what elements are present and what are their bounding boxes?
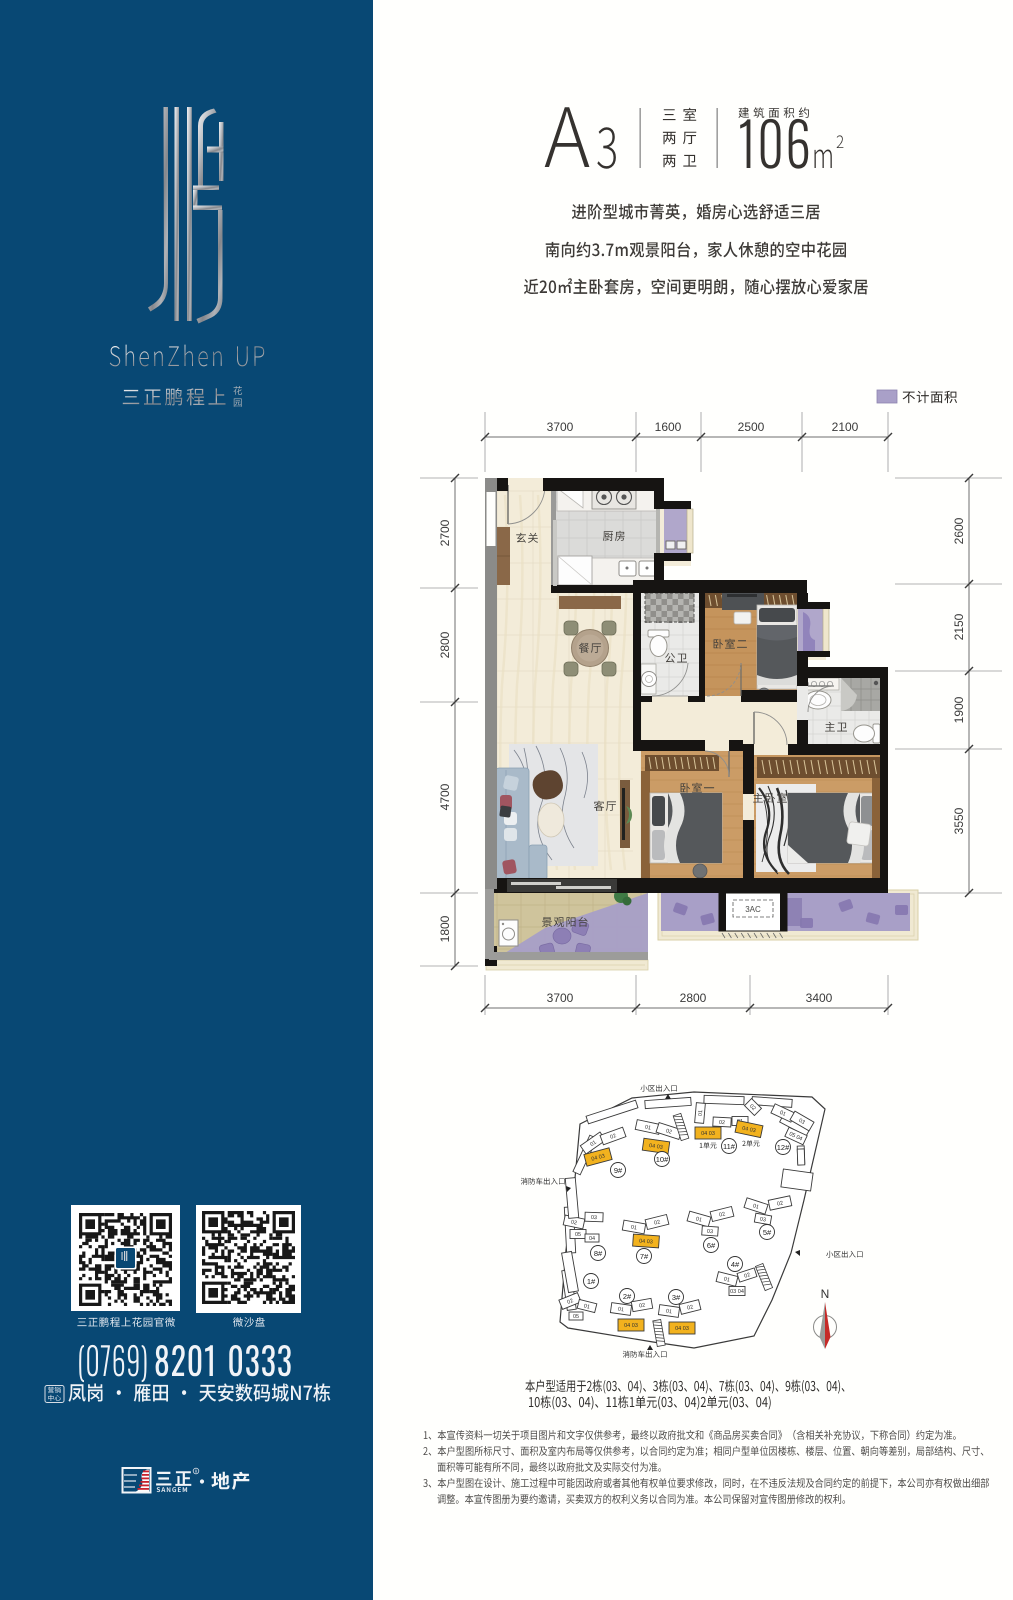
svg-text:7#: 7# xyxy=(640,1252,649,1261)
svg-text:01: 01 xyxy=(617,1307,624,1314)
svg-text:3400: 3400 xyxy=(806,991,833,1005)
svg-text:1600: 1600 xyxy=(655,420,682,434)
svg-text:6#: 6# xyxy=(707,1241,716,1250)
svg-text:10#: 10# xyxy=(656,1155,669,1164)
svg-text:12#: 12# xyxy=(777,1143,790,1152)
svg-text:02: 02 xyxy=(570,1219,577,1226)
svg-text:1#: 1# xyxy=(587,1277,596,1286)
svg-text:N: N xyxy=(821,1287,830,1301)
svg-text:2800: 2800 xyxy=(438,631,452,658)
svg-text:05: 05 xyxy=(573,1314,579,1320)
svg-text:5#: 5# xyxy=(763,1228,772,1237)
svg-text:2150: 2150 xyxy=(952,613,966,640)
svg-text:04 03: 04 03 xyxy=(701,1131,715,1137)
svg-text:2700: 2700 xyxy=(438,519,452,546)
svg-text:4700: 4700 xyxy=(438,783,452,810)
svg-text:2100: 2100 xyxy=(832,420,859,434)
svg-text:1800: 1800 xyxy=(438,915,452,942)
svg-text:01: 01 xyxy=(698,1110,705,1117)
svg-text:1900: 1900 xyxy=(952,696,966,723)
svg-text:3#: 3# xyxy=(672,1293,681,1302)
svg-text:02: 02 xyxy=(639,1302,646,1309)
svg-text:3700: 3700 xyxy=(547,991,574,1005)
svg-text:2600: 2600 xyxy=(952,517,966,544)
svg-text:01: 01 xyxy=(665,1309,672,1316)
svg-text:03 04: 03 04 xyxy=(730,1289,744,1295)
svg-text:04 03: 04 03 xyxy=(639,1239,653,1246)
svg-text:01: 01 xyxy=(630,1224,637,1231)
svg-text:8#: 8# xyxy=(594,1249,603,1258)
svg-text:03: 03 xyxy=(707,1229,714,1235)
svg-text:4#: 4# xyxy=(731,1260,740,1269)
svg-text:04 03: 04 03 xyxy=(675,1326,689,1332)
svg-text:3AC: 3AC xyxy=(745,905,761,914)
svg-text:03: 03 xyxy=(759,1216,766,1223)
svg-text:04: 04 xyxy=(589,1236,595,1242)
svg-text:2#: 2# xyxy=(623,1292,632,1301)
svg-text:01: 01 xyxy=(644,1124,651,1131)
svg-text:04 03: 04 03 xyxy=(624,1323,638,1329)
svg-text:05: 05 xyxy=(575,1232,581,1238)
svg-text:3700: 3700 xyxy=(547,420,574,434)
svg-text:2800: 2800 xyxy=(680,991,707,1005)
svg-text:02: 02 xyxy=(719,1120,725,1126)
svg-text:03: 03 xyxy=(591,1215,597,1221)
svg-text:11#: 11# xyxy=(723,1142,736,1151)
svg-text:9#: 9# xyxy=(614,1166,623,1175)
svg-text:02: 02 xyxy=(777,1200,784,1207)
svg-text:3550: 3550 xyxy=(952,807,966,834)
svg-text:2500: 2500 xyxy=(738,420,765,434)
